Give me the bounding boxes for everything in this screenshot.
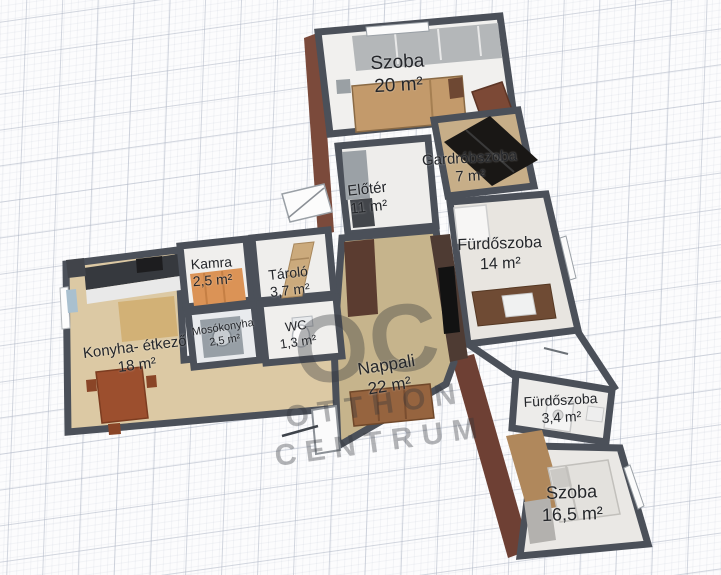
entrance-door: [312, 406, 340, 454]
room-label-szoba-165: Szoba 16,5 m²: [541, 481, 604, 527]
entrance-door-leaf: [282, 426, 318, 436]
shelf-unit: [344, 239, 378, 317]
room-label-furdoszoba-14: Fürdőszoba 14 m²: [457, 233, 543, 275]
room-label-gardrobszoba: Gardróbszoba 7 m²: [422, 147, 519, 189]
room-label-eloter: Előtér 11 m²: [347, 179, 390, 219]
room-area: 16,5 m²: [542, 503, 604, 527]
room-label-wc: WC 1,3 m²: [277, 316, 318, 353]
radiator: [544, 348, 568, 354]
room-label-furdoszoba-34: Fürdőszoba 3,4 m²: [523, 390, 599, 428]
fridge: [66, 258, 86, 278]
room-area: 20 m²: [371, 73, 426, 99]
room-nappali: [334, 230, 468, 446]
room-label-szoba-20: Szoba 20 m²: [370, 49, 426, 98]
chair: [146, 375, 157, 388]
room-area: 14 m²: [458, 253, 543, 275]
room-label-kamra: Kamra 2,5 m²: [190, 254, 234, 291]
room-name: Fürdőszoba: [457, 233, 542, 255]
room-name: Szoba: [370, 49, 425, 75]
room-name: Szoba: [541, 481, 603, 505]
sink: [502, 293, 536, 317]
kitchen-sink: [66, 289, 78, 313]
rooms: [60, 16, 648, 556]
room-area: 2,5 m²: [191, 271, 233, 291]
floor-plan-canvas: OC OTTHON CENTRUM Szoba 20 m² Gardróbszo…: [0, 0, 721, 575]
room-label-tarolo: Tároló 3,7 m²: [267, 263, 310, 301]
floor-plan-drawing: [0, 0, 721, 575]
nightstand: [336, 79, 351, 94]
chair: [108, 423, 121, 435]
stove: [136, 256, 163, 273]
pillow: [448, 77, 464, 99]
